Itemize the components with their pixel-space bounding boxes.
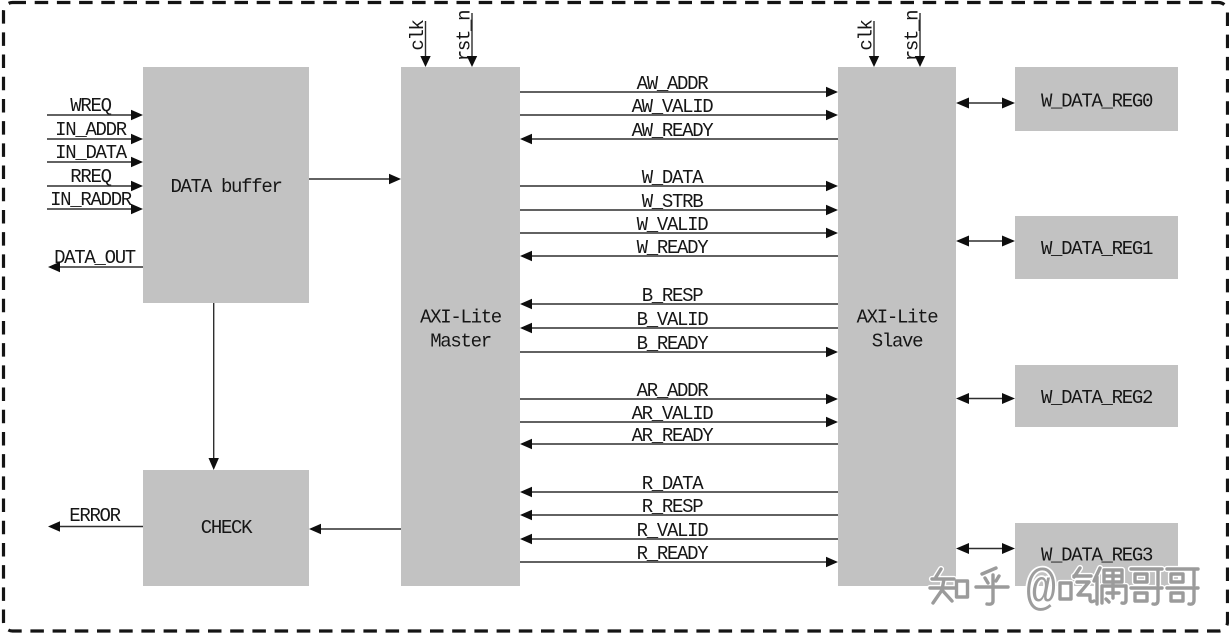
svg-text:AXI-Lite: AXI-Lite: [420, 307, 502, 329]
svg-text:W_DATA_REG1: W_DATA_REG1: [1041, 238, 1153, 260]
svg-text:@: @: [1026, 563, 1056, 620]
svg-text:IN_DATA: IN_DATA: [55, 142, 128, 164]
svg-text:CHECK: CHECK: [201, 517, 253, 539]
svg-text:IN_ADDR: IN_ADDR: [55, 119, 127, 141]
svg-text:W_DATA_REG3: W_DATA_REG3: [1041, 545, 1153, 567]
svg-text:Master: Master: [430, 331, 491, 353]
svg-text:Slave: Slave: [872, 331, 923, 353]
svg-text:RREQ: RREQ: [70, 166, 111, 188]
svg-text:DATA_OUT: DATA_OUT: [54, 247, 136, 269]
svg-text:AXI-Lite: AXI-Lite: [857, 307, 939, 329]
svg-text:W_DATA_REG0: W_DATA_REG0: [1041, 91, 1153, 113]
svg-text:WREQ: WREQ: [70, 95, 111, 117]
svg-text:W_DATA_REG2: W_DATA_REG2: [1041, 387, 1153, 409]
svg-text:ERROR: ERROR: [69, 505, 120, 527]
svg-text:DATA buffer: DATA buffer: [170, 176, 281, 198]
svg-text:IN_RADDR: IN_RADDR: [50, 189, 132, 211]
